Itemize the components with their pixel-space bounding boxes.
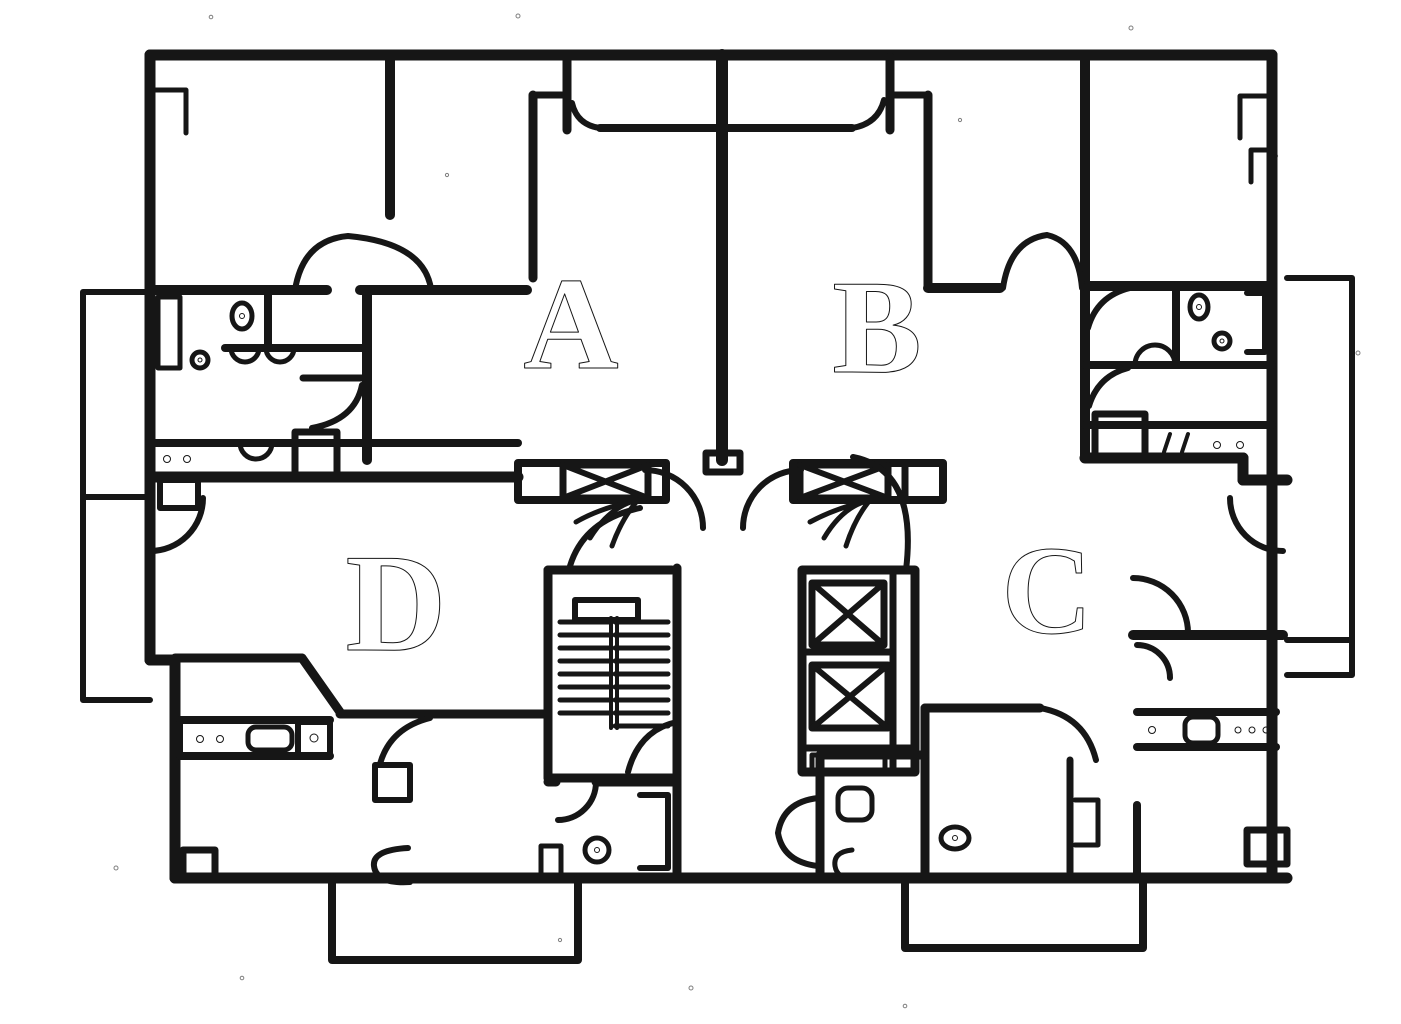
stove-icon: [298, 722, 330, 755]
scan-noise: [114, 14, 1360, 1008]
room-door-swing-b: [1089, 368, 1128, 406]
toilet-icon: [941, 827, 969, 849]
bath-door-swing-a: [312, 385, 362, 428]
core-staircase: [548, 568, 677, 878]
double-door-arch-a: [295, 236, 431, 290]
room-door-swing-d: [380, 718, 430, 764]
double-swing-door-corridor: [778, 798, 818, 866]
basin-icon: [1214, 333, 1230, 349]
stair-landing-rail: [575, 600, 638, 620]
door-fan-right: [810, 500, 870, 546]
window-notch-top-left: [152, 90, 186, 133]
unit-c-label: C: [1002, 522, 1093, 661]
window-notch-top-right: [1240, 96, 1268, 138]
stair-exit-swing: [628, 722, 677, 772]
toilet-icon: [1190, 295, 1208, 319]
unit-a-walls: [150, 55, 527, 477]
basin-icon: [192, 352, 208, 368]
bath-door-swing-d: [558, 782, 596, 820]
floor-plan-page: A B C D: [0, 0, 1401, 1024]
floor-plan-drawing: A B C D: [0, 0, 1401, 1024]
balcony-bottom-d: [332, 878, 578, 960]
balcony-bottom-c: [905, 878, 1143, 948]
toilet-icon: [585, 838, 609, 862]
unit-b-label: B: [832, 253, 921, 401]
fixture-box: [375, 765, 410, 800]
kitchen-sink-icon: [1185, 717, 1218, 743]
toilet-icon: [838, 788, 872, 820]
toilet-icon: [232, 303, 252, 329]
window-box-icon: [160, 480, 198, 508]
balcony-left: [83, 292, 150, 700]
kitchen-door-swing-c: [1137, 645, 1170, 678]
bathtub-icon: [1247, 293, 1265, 352]
unit-d-fixtures: [183, 722, 668, 882]
unit-d-label: D: [345, 526, 446, 681]
bathtub-icon: [1075, 800, 1098, 845]
unit-c-fixtures: [835, 717, 1287, 877]
core-vent-shafts: [518, 453, 943, 500]
bath-door-swing-c: [1040, 708, 1096, 760]
kitchen-sink-icon: [248, 727, 292, 750]
core-elevators: [802, 570, 915, 772]
balcony-right: [1287, 278, 1352, 675]
bathtub-icon: [640, 795, 668, 868]
stove-icon: [1095, 414, 1145, 458]
stair-treads: [560, 622, 668, 726]
bath-door-swing-b: [1088, 288, 1130, 328]
unit-a-label: A: [523, 250, 618, 397]
window-notch-top-right-2: [1251, 150, 1268, 182]
bedroom-door-swing-c: [1133, 578, 1188, 633]
unit-b-doors: [1003, 235, 1130, 406]
stove-icon: [295, 432, 337, 475]
double-door-arch-b: [1003, 235, 1082, 288]
window-icon: [158, 297, 180, 368]
